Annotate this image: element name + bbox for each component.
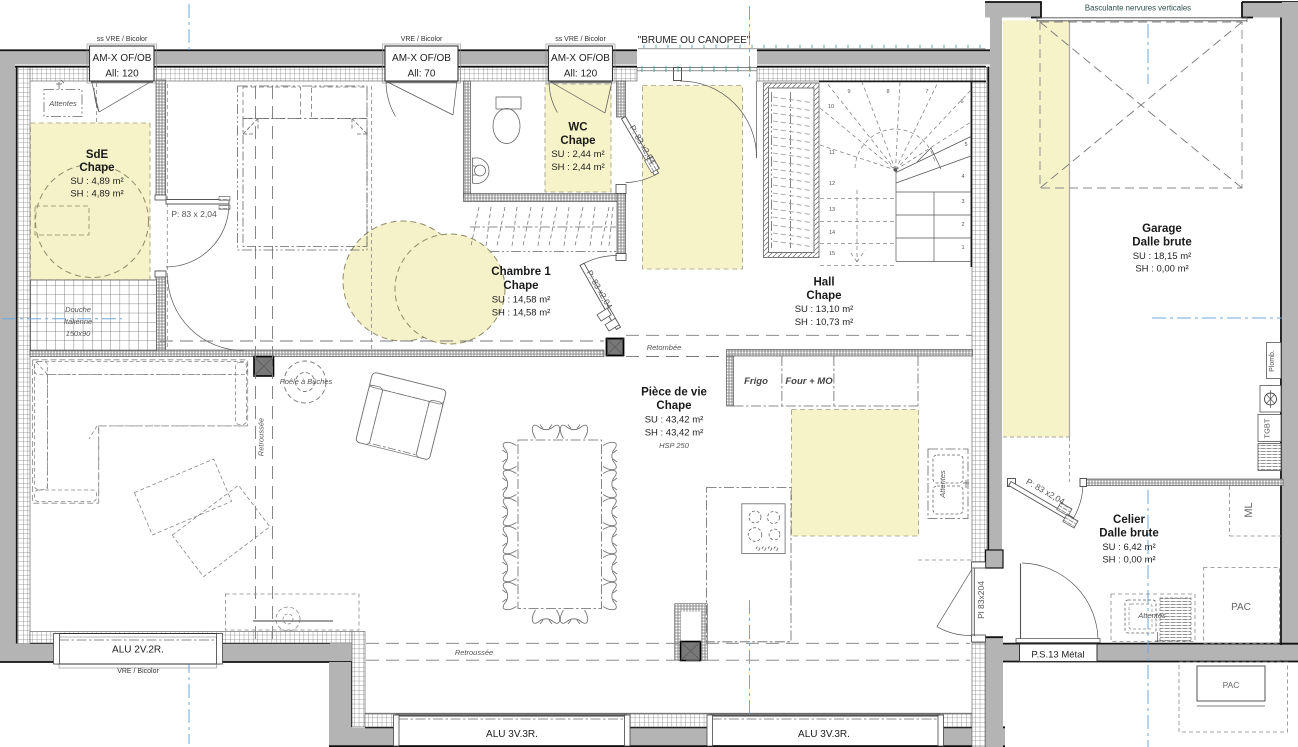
svg-text:SU : 4,89 m²: SU : 4,89 m² xyxy=(70,176,123,187)
svg-text:Douche: Douche xyxy=(65,305,91,314)
svg-text:All: 70: All: 70 xyxy=(408,69,436,80)
svg-text:Retroussée: Retroussée xyxy=(455,648,493,657)
svg-text:Pièce de vie: Pièce de vie xyxy=(641,387,707,399)
svg-text:SU : 6,42 m²: SU : 6,42 m² xyxy=(1102,542,1155,553)
svg-text:SH : 4,89 m²: SH : 4,89 m² xyxy=(70,189,123,200)
svg-text:5: 5 xyxy=(964,142,967,148)
svg-text:VRE / Bicolor: VRE / Bicolor xyxy=(401,36,443,43)
svg-text:ALU 3V.3R.: ALU 3V.3R. xyxy=(486,729,538,740)
svg-text:ML: ML xyxy=(1243,502,1255,517)
svg-text:Attentes: Attentes xyxy=(938,470,947,499)
svg-text:Chape: Chape xyxy=(503,280,538,292)
svg-text:Attentes: Attentes xyxy=(1137,611,1166,620)
svg-text:Dalle brute: Dalle brute xyxy=(1132,237,1191,249)
svg-text:Chape: Chape xyxy=(79,162,114,174)
svg-text:SH : 43,42 m²: SH : 43,42 m² xyxy=(645,428,704,439)
svg-text:PAC: PAC xyxy=(1223,680,1240,690)
svg-text:Dalle brute: Dalle brute xyxy=(1099,528,1158,540)
svg-text:All: 120: All: 120 xyxy=(105,69,139,80)
svg-text:9: 9 xyxy=(847,89,850,95)
svg-text:Four + MO: Four + MO xyxy=(785,376,833,387)
svg-text:"BRUME OU CANOPEE": "BRUME OU CANOPEE" xyxy=(638,35,751,46)
svg-text:SdE: SdE xyxy=(86,149,109,161)
svg-text:7: 7 xyxy=(925,89,928,95)
svg-text:SH : 14,58 m²: SH : 14,58 m² xyxy=(492,308,551,319)
svg-text:Chape: Chape xyxy=(656,400,691,412)
svg-text:6: 6 xyxy=(960,99,963,105)
svg-text:SU : 2,44 m²: SU : 2,44 m² xyxy=(551,149,604,160)
svg-text:150x90: 150x90 xyxy=(66,329,91,338)
svg-text:SU : 18,15 m²: SU : 18,15 m² xyxy=(1133,251,1192,262)
svg-text:P: 83 x 2,04: P: 83 x 2,04 xyxy=(171,209,217,219)
svg-text:Plomb.: Plomb. xyxy=(1269,350,1276,372)
svg-text:Basculante nervures verticales: Basculante nervures verticales xyxy=(1085,4,1191,13)
svg-text:ss VRE / Bicolor: ss VRE / Bicolor xyxy=(97,36,148,43)
svg-text:AM-X OF/OB: AM-X OF/OB xyxy=(93,53,152,64)
svg-text:Pl 83x204: Pl 83x204 xyxy=(976,581,986,619)
svg-text:12: 12 xyxy=(829,181,835,187)
svg-text:ss VRE / Bicolor: ss VRE / Bicolor xyxy=(555,36,606,43)
svg-text:WC: WC xyxy=(568,122,587,134)
svg-text:1: 1 xyxy=(961,245,964,251)
svg-text:2: 2 xyxy=(961,222,964,228)
svg-text:Poêle à Bûches: Poêle à Bûches xyxy=(280,377,333,386)
svg-text:10: 10 xyxy=(828,104,834,110)
svg-text:Celier: Celier xyxy=(1113,514,1145,526)
svg-text:Attentes: Attentes xyxy=(48,99,77,108)
svg-text:Hall: Hall xyxy=(813,277,834,289)
svg-text:SH : 0,00 m²: SH : 0,00 m² xyxy=(1135,264,1188,275)
svg-text:Garage: Garage xyxy=(1142,223,1182,235)
svg-text:4: 4 xyxy=(961,174,964,180)
svg-text:TGBT: TGBT xyxy=(1263,418,1272,438)
svg-text:SU : 43,42 m²: SU : 43,42 m² xyxy=(645,415,704,426)
svg-text:14: 14 xyxy=(829,230,835,236)
svg-text:Retombée: Retombée xyxy=(647,343,682,352)
svg-text:PAC: PAC xyxy=(1231,602,1251,613)
svg-text:Italienne: Italienne xyxy=(64,317,92,326)
svg-text:ALU 2V.2R.: ALU 2V.2R. xyxy=(112,645,164,656)
svg-text:SH : 10,73 m²: SH : 10,73 m² xyxy=(795,317,854,328)
svg-text:13: 13 xyxy=(829,207,835,213)
svg-text:Retroussée: Retroussée xyxy=(257,418,266,456)
svg-text:Frigo: Frigo xyxy=(744,376,768,387)
svg-text:11: 11 xyxy=(829,150,835,156)
svg-text:8: 8 xyxy=(886,89,889,95)
svg-text:3: 3 xyxy=(961,199,964,205)
svg-text:SU : 13,10 m²: SU : 13,10 m² xyxy=(795,304,854,315)
svg-text:All: 120: All: 120 xyxy=(564,69,598,80)
svg-text:P.S.13 Métal: P.S.13 Métal xyxy=(1031,650,1084,661)
svg-text:SU : 14,58 m²: SU : 14,58 m² xyxy=(492,295,551,306)
svg-text:HSP 250: HSP 250 xyxy=(659,441,690,450)
svg-text:AM-X OF/OB: AM-X OF/OB xyxy=(551,53,610,64)
svg-text:Chape: Chape xyxy=(806,290,841,302)
svg-text:ALU 3V.3R.: ALU 3V.3R. xyxy=(798,729,850,740)
svg-text:Chape: Chape xyxy=(560,135,595,147)
svg-text:Chambre 1: Chambre 1 xyxy=(491,266,551,278)
svg-text:SH : 2,44 m²: SH : 2,44 m² xyxy=(551,162,604,173)
svg-text:15: 15 xyxy=(829,251,835,257)
svg-text:AM-X OF/OB: AM-X OF/OB xyxy=(392,53,451,64)
svg-text:VRE / Bicolor: VRE / Bicolor xyxy=(117,668,159,675)
svg-text:SH : 0,00 m²: SH : 0,00 m² xyxy=(1102,555,1155,566)
